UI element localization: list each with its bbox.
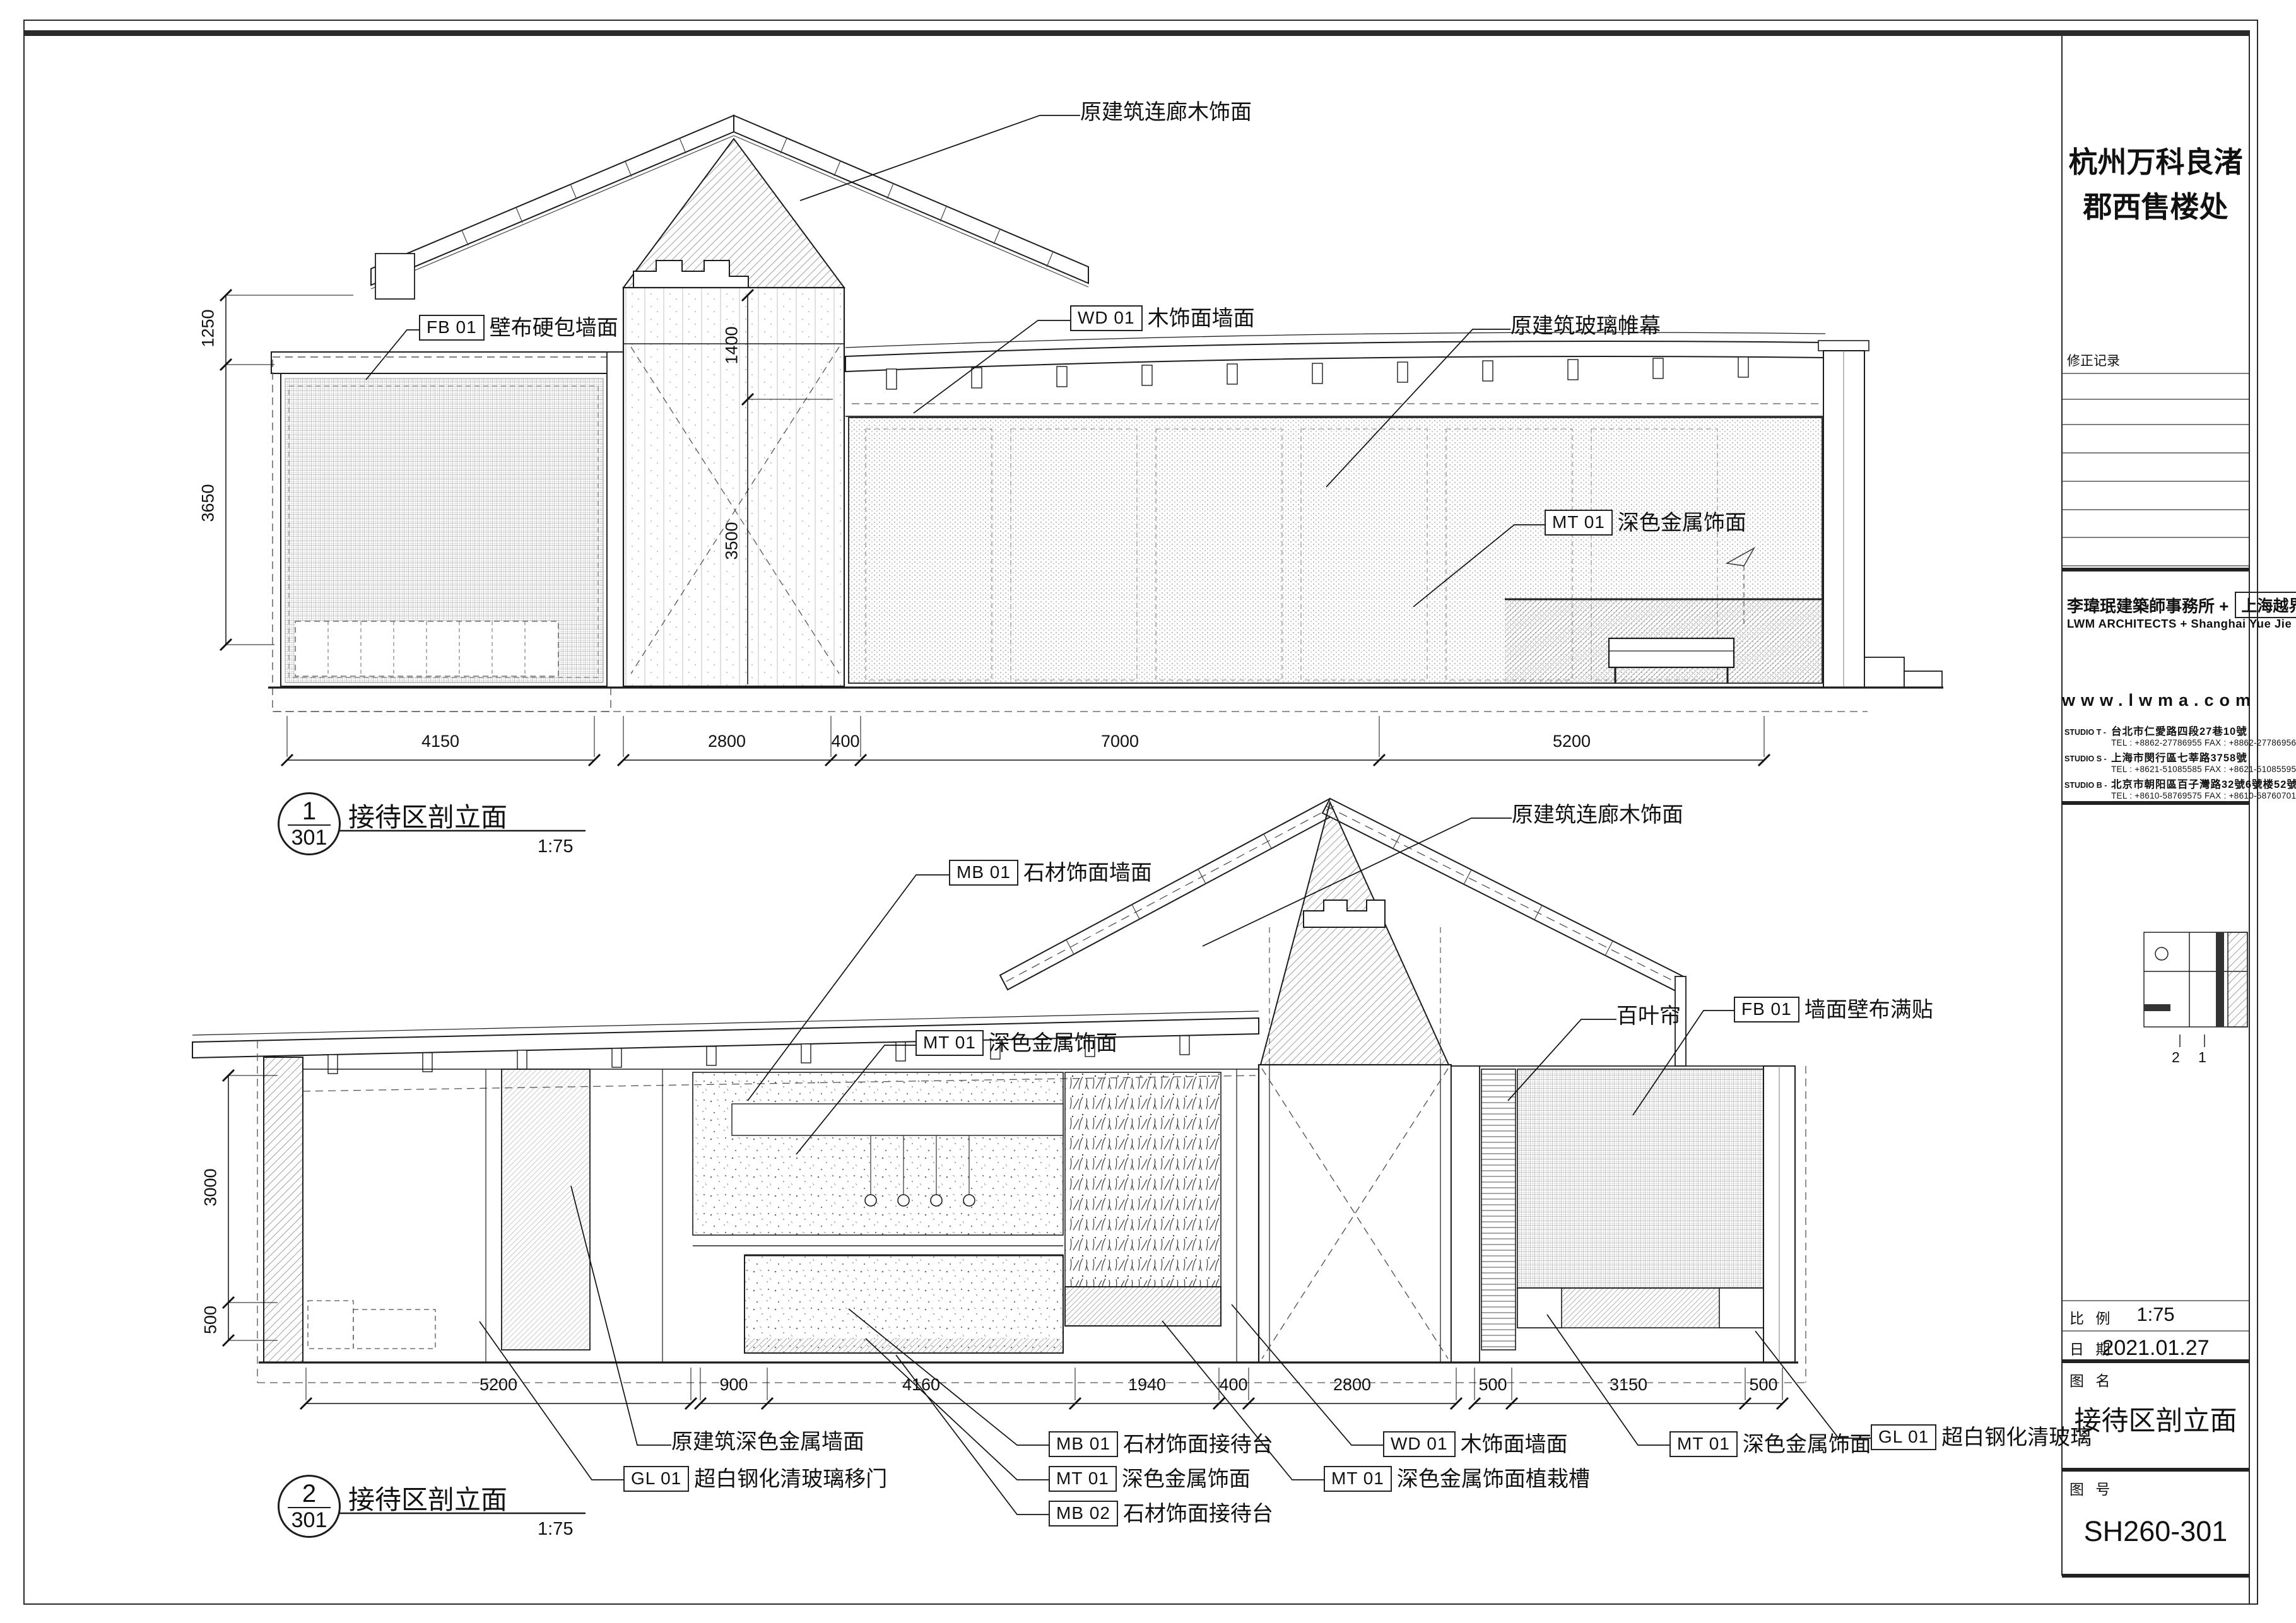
titleblock-rules <box>2062 373 2249 1331</box>
studio-tel: TEL : +8610-58769575 FAX : +8610-5876070… <box>2111 791 2296 800</box>
drawing-1-bubble: 1 301 <box>278 792 341 855</box>
dim-7000: 7000 <box>1101 732 1139 751</box>
dim-3500: 3500 <box>722 497 742 585</box>
dim-1250: 1250 <box>199 284 218 373</box>
material-tag: FB 01 <box>419 315 485 341</box>
dim-900: 900 <box>719 1375 748 1395</box>
date-value: 2021.01.27 <box>2062 1336 2249 1361</box>
material-tag: MT 01 <box>1324 1466 1392 1492</box>
callout-mt01-planter: MT 01 深色金属饰面植栽槽 <box>1324 1466 1590 1492</box>
revision-record-label: 修正记录 <box>2067 351 2120 370</box>
drawing-name-label: 图 名 <box>2069 1369 2114 1390</box>
callout-text: 原建筑连廊木饰面 <box>1512 804 1683 826</box>
dim-3000: 3000 <box>201 1144 221 1232</box>
callout-text: 深色金属饰面 <box>989 1033 1117 1054</box>
project-title-line2: 郡西售楼处 <box>2062 185 2249 230</box>
scale-value: 1:75 <box>2062 1303 2249 1326</box>
callout-text: 深色金属饰面 <box>1743 1434 1871 1455</box>
callout-text: 石材饰面接待台 <box>1123 1503 1273 1525</box>
dim-500-left: 500 <box>201 1276 221 1364</box>
callout-text: 深色金属饰面植栽槽 <box>1397 1468 1590 1490</box>
keyplan-mark-1: 1 <box>2198 1049 2206 1066</box>
material-tag: FB 01 <box>1734 997 1799 1022</box>
callout-corridor-wood-1: 原建筑连廊木饰面 <box>1080 102 1252 123</box>
firm-website: www.lwma.com <box>2062 691 2249 710</box>
firm-partner-box: 上海越界 <box>2235 592 2296 618</box>
callout-text: 墙面壁布满贴 <box>1804 999 1933 1021</box>
material-tag: WD 01 <box>1070 305 1143 331</box>
callout-fb01-fullwall: FB 01 墙面壁布满贴 <box>1734 997 1933 1022</box>
callout-mt01-metal-1: MT 01 深色金属饰面 <box>1545 510 1746 536</box>
dim-5200-2: 5200 <box>480 1375 517 1395</box>
drawing-name-value: 接待区剖立面 <box>2062 1399 2249 1438</box>
studio-address: 北京市朝阳區百子灣路32號6號楼52號 <box>2111 779 2296 790</box>
callout-text: 原建筑连廊木饰面 <box>1080 102 1252 123</box>
material-tag: GL 01 <box>1871 1424 1936 1450</box>
drawing-2-bubble: 2 301 <box>278 1475 341 1538</box>
studio-label: STUDIO T - <box>2064 728 2111 737</box>
drawing-number: 1 <box>302 798 316 824</box>
material-tag: MT 01 <box>1049 1466 1117 1492</box>
project-title-line1: 杭州万科良渚 <box>2062 140 2249 185</box>
architect-firm-name-en: LWM ARCHITECTS + Shanghai Yue Jie <box>2067 617 2292 631</box>
drawing-number: 2 <box>302 1480 316 1507</box>
dim-400: 400 <box>831 732 859 751</box>
studio-label: STUDIO S - <box>2064 754 2111 763</box>
callout-gl01-sliding-door: GL 01 超白钢化清玻璃移门 <box>623 1466 887 1492</box>
callout-text: 原建筑玻璃帷幕 <box>1510 315 1661 337</box>
dim-3150: 3150 <box>1610 1375 1647 1395</box>
callout-text: 石材饰面接待台 <box>1123 1434 1273 1455</box>
callout-text: 石材饰面墙面 <box>1023 862 1152 884</box>
material-tag: MT 01 <box>1669 1431 1738 1457</box>
drawing-sheet: 原建筑连廊木饰面 FB 01 壁布硬包墙面 WD 01 木饰面墙面 原建筑玻璃帷… <box>0 0 2296 1623</box>
elevation-2-linework <box>192 799 1806 1383</box>
drawing-number-label: 图 号 <box>2069 1477 2114 1499</box>
drawing-1-scale: 1:75 <box>538 836 573 857</box>
material-tag: MB 02 <box>1049 1501 1118 1526</box>
callout-glass-curtain: 原建筑玻璃帷幕 <box>1510 315 1661 337</box>
callout-mb02-desk: MB 02 石材饰面接待台 <box>1049 1501 1273 1526</box>
material-tag: MT 01 <box>1545 510 1613 536</box>
callout-mt01-metal-2: MT 01 深色金属饰面 <box>915 1030 1117 1056</box>
callout-text: 深色金属饰面 <box>1122 1468 1251 1490</box>
callout-louver-blind: 百叶帘 <box>1616 1005 1681 1027</box>
studio-address: 上海市閔行區七莘路3758號 <box>2111 753 2247 764</box>
dim-1940: 1940 <box>1128 1375 1166 1395</box>
drawing-1-title: 接待区剖立面 <box>348 796 507 835</box>
callout-mb01-desk: MB 01 石材饰面接待台 <box>1049 1431 1273 1457</box>
dim-3650: 3650 <box>199 459 218 548</box>
drawing-2-scale: 1:75 <box>538 1519 573 1540</box>
dim-500b: 500 <box>1749 1375 1777 1395</box>
studio-label: STUDIO B - <box>2064 781 2111 790</box>
dim-4150: 4150 <box>421 732 459 751</box>
material-tag: WD 01 <box>1383 1431 1456 1457</box>
callout-text: 壁布硬包墙面 <box>490 317 618 339</box>
callout-wd01-wall-2: WD 01 木饰面墙面 <box>1383 1431 1568 1457</box>
material-tag: MB 01 <box>949 860 1018 886</box>
dim-2800: 2800 <box>708 732 746 751</box>
callout-wd01-wall: WD 01 木饰面墙面 <box>1070 305 1255 331</box>
keyplan-thumbnail <box>2144 932 2247 1047</box>
material-tag: MB 01 <box>1049 1431 1118 1457</box>
dim-500a: 500 <box>1478 1375 1507 1395</box>
studio-address: 台北市仁愛路四段27巷10號 <box>2111 726 2247 737</box>
sheet-number: 301 <box>288 1507 331 1532</box>
studio-shanghai: STUDIO S -上海市閔行區七莘路3758號 TEL : +8621-510… <box>2064 749 2296 774</box>
project-title: 杭州万科良渚 郡西售楼处 <box>2062 140 2249 230</box>
drawing-number-value: SH260-301 <box>2062 1515 2249 1548</box>
callout-text: 超白钢化清玻璃移门 <box>694 1468 887 1490</box>
callout-fb01-wall: FB 01 壁布硬包墙面 <box>419 315 618 341</box>
sheet-number: 301 <box>288 824 331 850</box>
callout-text: 百叶帘 <box>1616 1005 1681 1027</box>
material-tag: MT 01 <box>915 1030 984 1056</box>
drawing-2-title: 接待区剖立面 <box>348 1479 507 1517</box>
callout-text: 木饰面墙面 <box>1148 308 1255 329</box>
dim-5200: 5200 <box>1553 732 1591 751</box>
studio-beijing: STUDIO B -北京市朝阳區百子灣路32號6號楼52號 TEL : +861… <box>2064 776 2296 800</box>
callout-gl01-glass: GL 01 超白钢化清玻璃 <box>1871 1424 2092 1450</box>
callout-mt01-metal-4: MT 01 深色金属饰面 <box>1669 1431 1871 1457</box>
architect-firm-name: 李瑋珉建築師事務所 + 上海越界 <box>2067 592 2296 618</box>
dim-4160: 4160 <box>902 1375 940 1395</box>
studio-tel: TEL : +8621-51085585 FAX : +8621-5108559… <box>2111 765 2296 774</box>
callout-text: 木饰面墙面 <box>1461 1434 1568 1455</box>
keyplan-mark-2: 2 <box>2172 1049 2180 1066</box>
dim-2800-2: 2800 <box>1333 1375 1371 1395</box>
material-tag: GL 01 <box>623 1466 689 1492</box>
elevation-1-linework <box>268 115 1943 712</box>
callout-mb01-stonewall: MB 01 石材饰面墙面 <box>949 860 1152 886</box>
firm-cn: 李瑋珉建築師事務所 + <box>2067 594 2228 617</box>
callout-original-metal-wall: 原建筑深色金属墙面 <box>671 1431 864 1453</box>
callout-corridor-wood-2: 原建筑连廊木饰面 <box>1512 804 1683 826</box>
dim-400-2: 400 <box>1219 1375 1247 1395</box>
callout-text: 原建筑深色金属墙面 <box>671 1431 864 1453</box>
callout-mt01-metal-3: MT 01 深色金属饰面 <box>1049 1466 1251 1492</box>
callout-text: 深色金属饰面 <box>1618 512 1746 534</box>
studio-taipei: STUDIO T -台北市仁愛路四段27巷10號 TEL : +8862-277… <box>2064 723 2296 747</box>
studio-tel: TEL : +8862-27786955 FAX : +8862-2778695… <box>2111 738 2296 747</box>
dim-1400: 1400 <box>722 302 742 390</box>
